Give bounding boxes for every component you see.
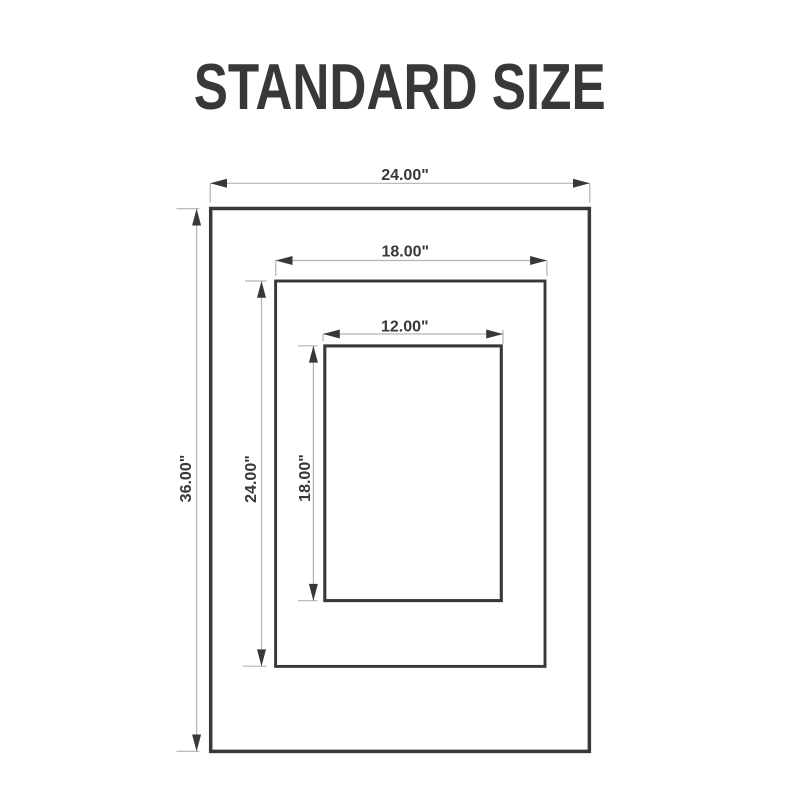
svg-text:STANDARD SIZE: STANDARD SIZE bbox=[194, 50, 606, 123]
svg-text:18.00": 18.00" bbox=[381, 243, 429, 260]
svg-text:24.00": 24.00" bbox=[243, 455, 260, 503]
svg-text:12.00": 12.00" bbox=[381, 318, 429, 335]
svg-text:36.00": 36.00" bbox=[178, 455, 195, 503]
svg-text:18.00": 18.00" bbox=[297, 454, 314, 502]
svg-text:24.00": 24.00" bbox=[381, 167, 429, 184]
